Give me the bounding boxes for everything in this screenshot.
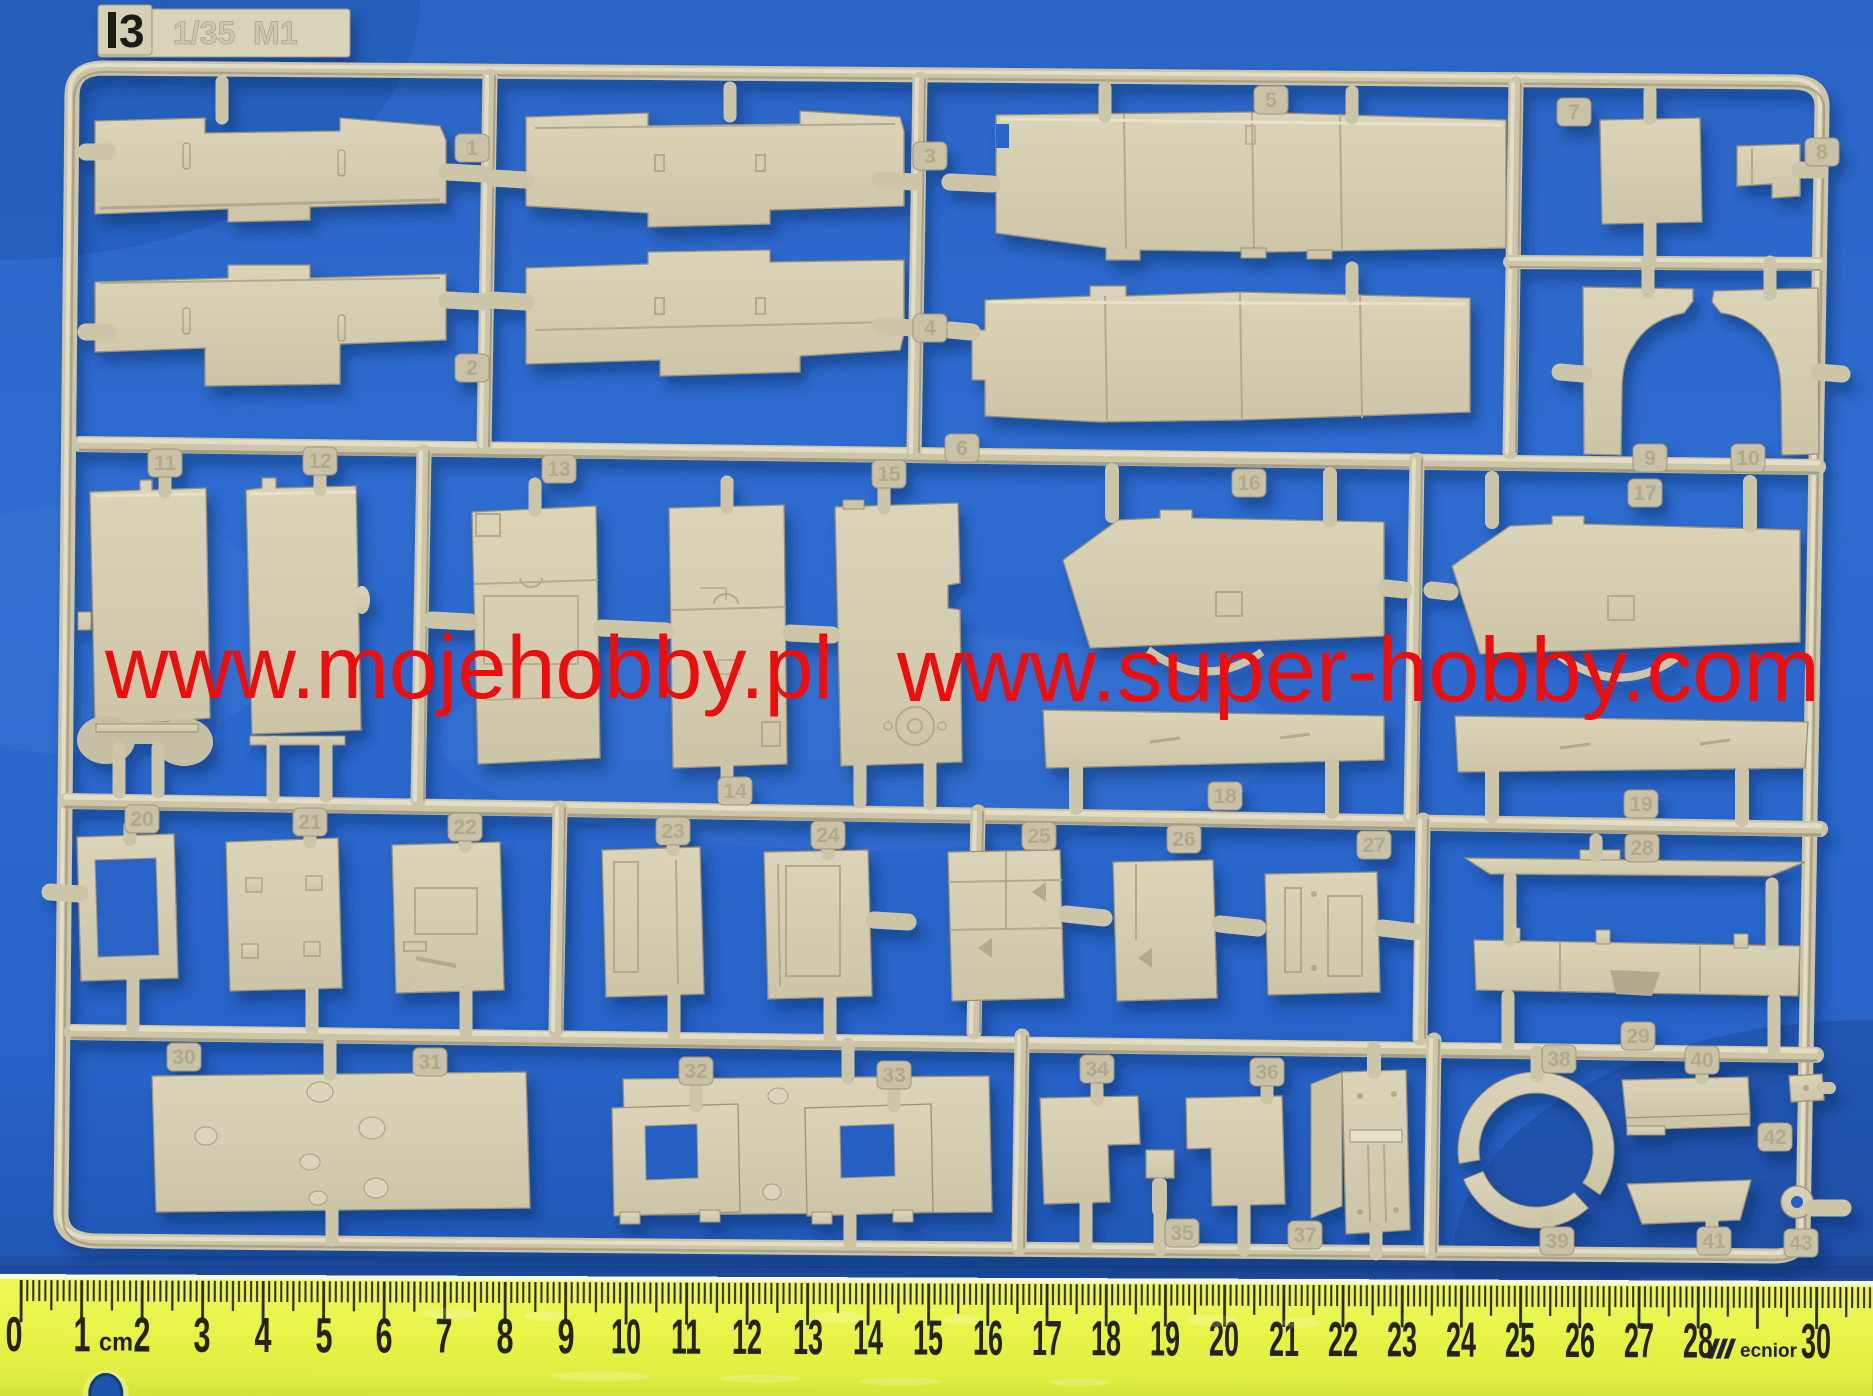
svg-text:7: 7 — [1568, 101, 1580, 124]
svg-text:17: 17 — [1032, 1312, 1062, 1366]
svg-text:31: 31 — [418, 1051, 442, 1074]
svg-text:www.mojehobby.pl: www.mojehobby.pl — [104, 617, 833, 717]
svg-text:2: 2 — [466, 357, 478, 380]
svg-text:28: 28 — [1630, 837, 1654, 860]
svg-text:cm: cm — [99, 1326, 133, 1356]
svg-text:18: 18 — [1091, 1312, 1121, 1366]
svg-text:1: 1 — [73, 1308, 90, 1362]
svg-text:11: 11 — [154, 452, 177, 475]
svg-text:20: 20 — [130, 808, 153, 831]
svg-text:6: 6 — [956, 437, 968, 460]
svg-text:6: 6 — [375, 1309, 392, 1363]
svg-text:2: 2 — [133, 1309, 150, 1363]
svg-text:24: 24 — [816, 824, 840, 847]
svg-text:40: 40 — [1690, 1049, 1713, 1072]
svg-text:ecnior: ecnior — [1740, 1341, 1798, 1362]
svg-text:15: 15 — [913, 1312, 943, 1366]
svg-text:8: 8 — [1816, 141, 1828, 164]
svg-text:10: 10 — [611, 1310, 641, 1364]
svg-text:25: 25 — [1027, 825, 1051, 848]
svg-text:13: 13 — [547, 458, 570, 481]
svg-text:5: 5 — [1265, 89, 1277, 112]
svg-text:43: 43 — [1789, 1232, 1812, 1255]
svg-text:32: 32 — [684, 1060, 707, 1083]
svg-text:22: 22 — [453, 816, 476, 839]
svg-text:12: 12 — [732, 1311, 762, 1365]
svg-text:17: 17 — [1633, 482, 1656, 505]
svg-text:23: 23 — [1387, 1313, 1417, 1367]
svg-text:9: 9 — [1644, 447, 1656, 470]
svg-text:18: 18 — [1213, 785, 1237, 808]
svg-text:0: 0 — [5, 1308, 22, 1362]
svg-text:www.super-hobby.com: www.super-hobby.com — [896, 620, 1820, 721]
svg-text:10: 10 — [1736, 447, 1759, 470]
svg-text:14: 14 — [723, 780, 747, 803]
svg-text:41: 41 — [1702, 1230, 1726, 1253]
svg-text:30: 30 — [172, 1046, 195, 1069]
svg-text:26: 26 — [1172, 828, 1195, 851]
svg-text:11: 11 — [671, 1311, 701, 1365]
svg-text:19: 19 — [1150, 1312, 1180, 1366]
svg-text:33: 33 — [882, 1064, 905, 1087]
svg-text:21: 21 — [298, 811, 322, 834]
svg-text:25: 25 — [1505, 1314, 1535, 1368]
svg-text:38: 38 — [1547, 1048, 1571, 1071]
svg-text:23: 23 — [661, 820, 684, 843]
svg-text:16: 16 — [1237, 472, 1260, 495]
svg-text:4: 4 — [254, 1309, 271, 1363]
svg-text:36: 36 — [1255, 1061, 1278, 1084]
svg-text:3: 3 — [193, 1309, 210, 1363]
svg-text:28: 28 — [1683, 1314, 1713, 1368]
svg-text:37: 37 — [1293, 1224, 1316, 1247]
svg-text:29: 29 — [1626, 1025, 1649, 1048]
svg-text:1/35 M1: 1/35 M1 — [173, 15, 298, 51]
svg-text:42: 42 — [1763, 1126, 1786, 1149]
svg-text:8: 8 — [496, 1310, 513, 1364]
svg-text:30: 30 — [1801, 1315, 1831, 1369]
svg-text:12: 12 — [308, 450, 331, 473]
svg-text:27: 27 — [1624, 1314, 1654, 1368]
svg-text:22: 22 — [1328, 1313, 1358, 1367]
svg-text:35: 35 — [1170, 1222, 1194, 1245]
svg-text:1: 1 — [466, 137, 478, 160]
svg-text:34: 34 — [1085, 1058, 1109, 1081]
svg-text:39: 39 — [1545, 1230, 1568, 1253]
svg-text:5: 5 — [315, 1309, 332, 1363]
svg-text:27: 27 — [1362, 834, 1385, 857]
svg-text:3: 3 — [119, 5, 145, 57]
svg-text:19: 19 — [1629, 793, 1652, 816]
svg-text:3: 3 — [924, 145, 936, 168]
svg-text:15: 15 — [877, 463, 901, 486]
svg-text:4: 4 — [924, 317, 936, 340]
svg-text:24: 24 — [1446, 1314, 1476, 1368]
svg-text:26: 26 — [1565, 1314, 1595, 1368]
